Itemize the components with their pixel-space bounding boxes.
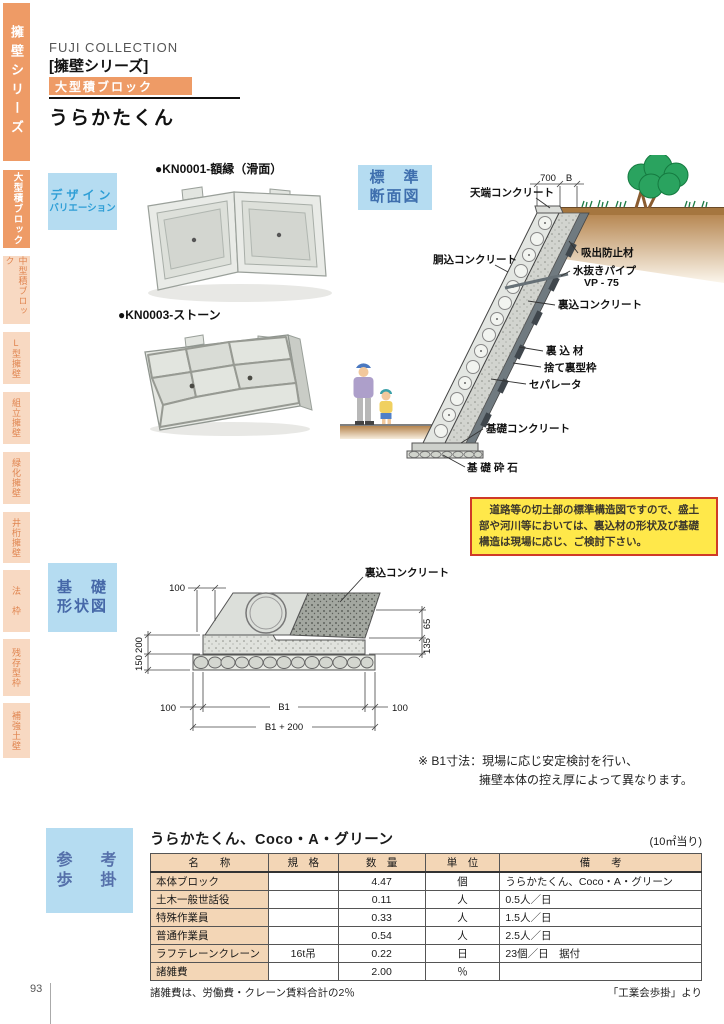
- label-separator: セパレータ: [529, 379, 582, 391]
- brand-text: FUJI COLLECTION: [49, 40, 178, 55]
- b1-dimension-note: ※ B1寸法：現場に応じ安定検討を行い、 擁壁本体の控え厚によって異なります。: [418, 752, 693, 790]
- reference-table: 名 称 規 格 数 量 単 位 備 考 本体ブロック 4.47 個 うらかたくん…: [150, 853, 702, 981]
- sidebar-tab-medium-block[interactable]: 中型積ブロック: [3, 256, 30, 324]
- caution-note: 道路等の切土部の標準構造図ですので、盛土部や河川等においては、裏込材の形状及び基…: [470, 497, 718, 556]
- fnd-dim-65: 65: [422, 619, 433, 630]
- label-vp75: VP - 75: [584, 277, 619, 289]
- sidebar-tab-zanzon[interactable]: 残存型枠: [3, 639, 30, 696]
- person-adult: [354, 363, 375, 425]
- product1-label: ●KN0001-額縁（滑面）: [155, 160, 282, 177]
- foundation-shape-diagram: 100 200 150 65 135 100 B1 100 B1 + 200 裏…: [130, 555, 470, 755]
- sidebar-tab-igeta[interactable]: 井桁擁壁: [3, 512, 30, 563]
- fnd-dim-200: 200: [134, 637, 145, 653]
- sidebar-tab-ryokka[interactable]: 緑化擁壁: [3, 452, 30, 504]
- sidebar-tab-large-block[interactable]: 大型積ブロック: [3, 170, 30, 248]
- category-badge: 大型積ブロック: [49, 77, 192, 95]
- product2-label: ●KN0003-ストーン: [118, 306, 221, 323]
- label-backfill-material: 裏 込 材: [545, 344, 584, 357]
- table-row: 土木一般世話役 0.11 人 0.5人／日: [151, 891, 702, 909]
- reference-table-block: うらかたくん、Coco・A・グリーン (10㎡当り) 名 称 規 格 数 量 単…: [150, 828, 702, 1000]
- section-label-reference: 参 考 歩 掛: [46, 828, 133, 913]
- col-qty: 数 量: [338, 854, 425, 873]
- fnd-dim-135: 135: [422, 638, 433, 654]
- label-drain-pipe: 水抜きパイプ: [572, 264, 636, 277]
- col-name: 名 称: [151, 854, 269, 873]
- col-unit: 単 位: [425, 854, 500, 873]
- fnd-dim-150: 150: [134, 655, 145, 671]
- fnd-dim-b1-200: B1 + 200: [265, 722, 303, 733]
- label-fill-concrete: 胴込コンクリート: [433, 253, 517, 266]
- table-row: 本体ブロック 4.47 個 うらかたくん、Coco・A・グリーン: [151, 872, 702, 891]
- table-unit-note: (10㎡当り): [649, 833, 702, 849]
- tree-icon: [628, 155, 688, 208]
- fnd-label-backfill-concrete: 裏込コンクリート: [364, 566, 449, 579]
- person-child: [380, 389, 393, 424]
- label-sacrificial-form: 捨て裏型枠: [544, 361, 597, 374]
- label-suction-prevention: 吸出防止材: [581, 246, 634, 259]
- table-row: 特殊作業員 0.33 人 1.5人／日: [151, 909, 702, 927]
- title-rule: [49, 97, 240, 99]
- fnd-block: [205, 593, 308, 635]
- standard-cross-section-diagram: 700 B 天端コンクリート 胴込コンクリート 吸出防止材 水抜きパイプ VP …: [340, 155, 724, 495]
- table-header-row: 名 称 規 格 数 量 単 位 備 考: [151, 854, 702, 873]
- section-label-foundation-shape: 基 礎 形状図: [48, 563, 117, 632]
- catalog-page: 擁壁シリーズ 大型積ブロック 中型積ブロック L型擁壁 組立擁壁 緑化擁壁 井桁…: [0, 0, 724, 1024]
- page-number: 93: [30, 983, 42, 995]
- fnd-dim-100-right: 100: [392, 703, 408, 714]
- col-remarks: 備 考: [500, 854, 702, 873]
- table-row: 普通作業員 0.54 人 2.5人／日: [151, 927, 702, 945]
- label-backfill-concrete: 裏込コンクリート: [557, 298, 642, 311]
- table-footnote-right: 「工業会歩掛」より: [608, 985, 702, 1000]
- fnd-dim-b1: B1: [278, 702, 290, 713]
- sidebar-tab-kumitate[interactable]: 組立擁壁: [3, 392, 30, 444]
- fnd-dim-100-left: 100: [160, 703, 176, 714]
- table-title: うらかたくん、Coco・A・グリーン: [150, 828, 394, 849]
- dim-b: B: [566, 173, 572, 184]
- section-label-design-variation: デザイン バリエーション: [48, 173, 117, 230]
- sidebar-tab-nori-waku[interactable]: 法 枠: [3, 570, 30, 632]
- base-concrete: [412, 443, 478, 451]
- table-row: ラフテレーンクレーン 16t吊 0.22 日 23個／日 据付: [151, 945, 702, 963]
- table-footnote-left: 諸雑費は、労働費・クレーン賃料合計の2％: [150, 985, 355, 1000]
- sidebar-series-label: 擁壁シリーズ: [3, 3, 30, 161]
- label-foundation-gravel: 基 礎 砕 石: [466, 461, 518, 474]
- dim-700: 700: [540, 173, 556, 184]
- series-title: [擁壁シリーズ]: [49, 55, 148, 76]
- product-title: うらかたくん: [49, 103, 175, 130]
- col-spec: 規 格: [268, 854, 338, 873]
- sidebar-tab-l-wall[interactable]: L型擁壁: [3, 332, 30, 384]
- sidebar-tab-hokyo[interactable]: 補強土壁: [3, 703, 30, 758]
- product1-photo: [130, 176, 345, 304]
- page-number-divider: [50, 983, 51, 1024]
- label-cap-concrete: 天端コンクリート: [470, 186, 554, 199]
- table-row: 諸雑費 2.00 ％: [151, 963, 702, 981]
- product2-photo: [130, 326, 315, 438]
- fnd-dim-100-top: 100: [169, 583, 185, 594]
- label-foundation-concrete: 基礎コンクリート: [485, 422, 570, 435]
